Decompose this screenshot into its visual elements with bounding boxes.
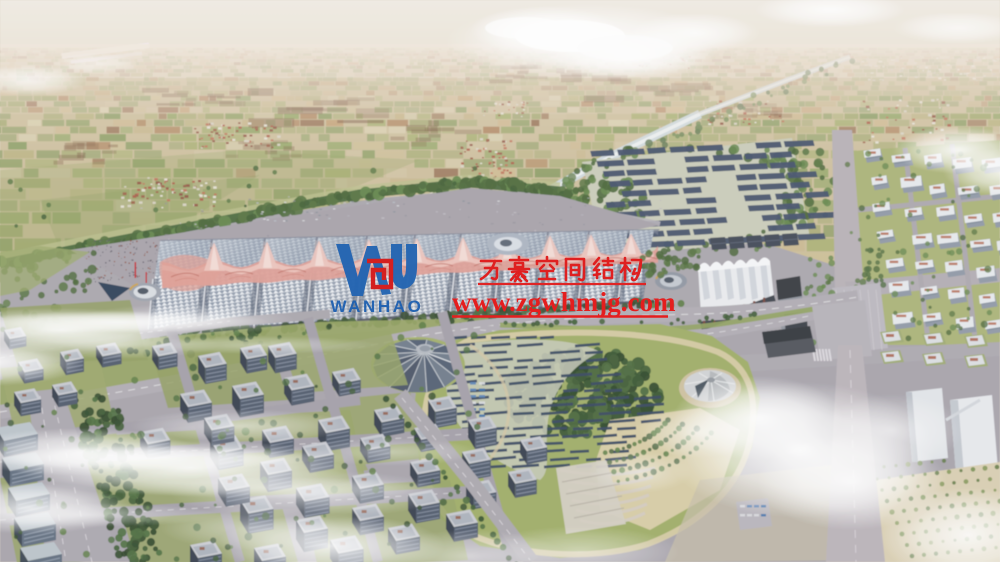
svg-text:www.zgwhmjg.com: www.zgwhmjg.com [452, 287, 676, 317]
svg-text:WANHAO: WANHAO [330, 297, 423, 316]
